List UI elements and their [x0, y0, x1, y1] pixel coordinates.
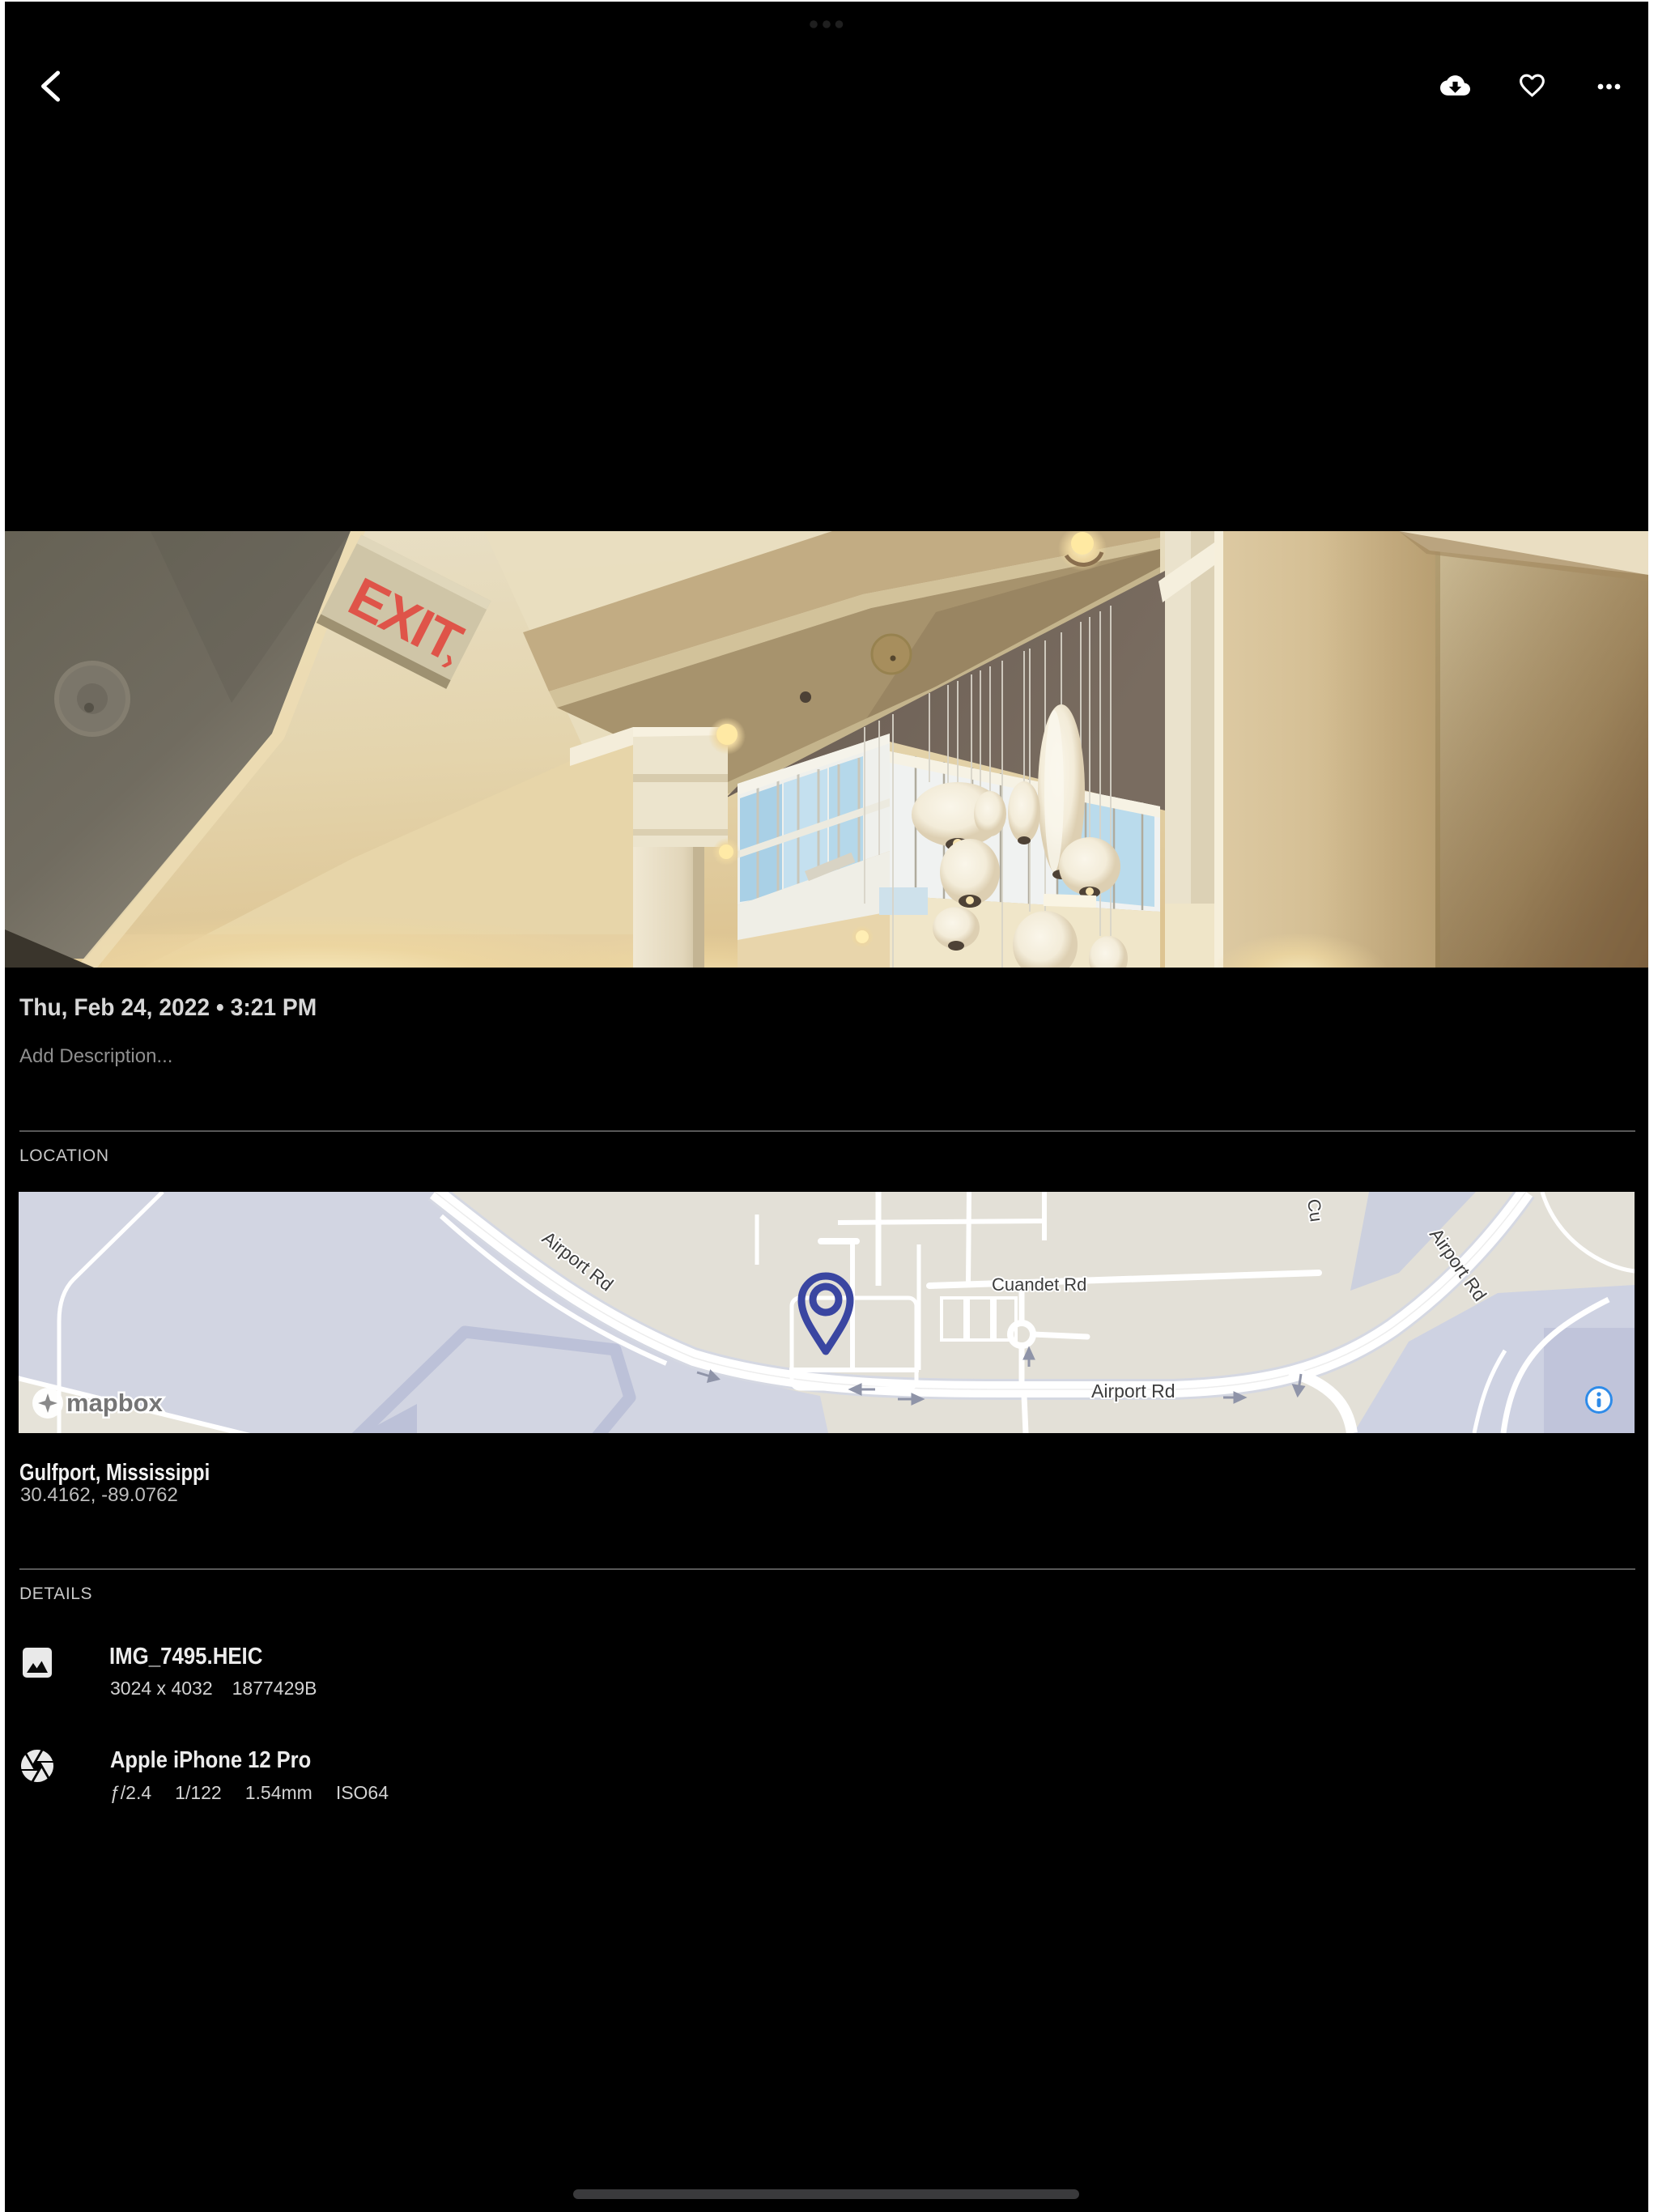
svg-text:Cu: Cu	[1303, 1197, 1327, 1223]
svg-text:Airport Rd: Airport Rd	[1091, 1380, 1175, 1402]
svg-text:Cuandet Rd: Cuandet Rd	[992, 1274, 1086, 1295]
svg-text:mapbox: mapbox	[66, 1389, 164, 1417]
